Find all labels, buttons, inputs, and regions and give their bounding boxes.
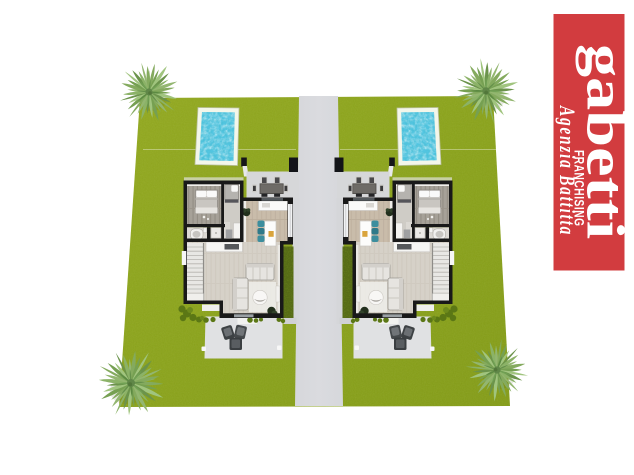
svg-text:Agenzia Battitta: Agenzia Battitta — [554, 105, 578, 236]
